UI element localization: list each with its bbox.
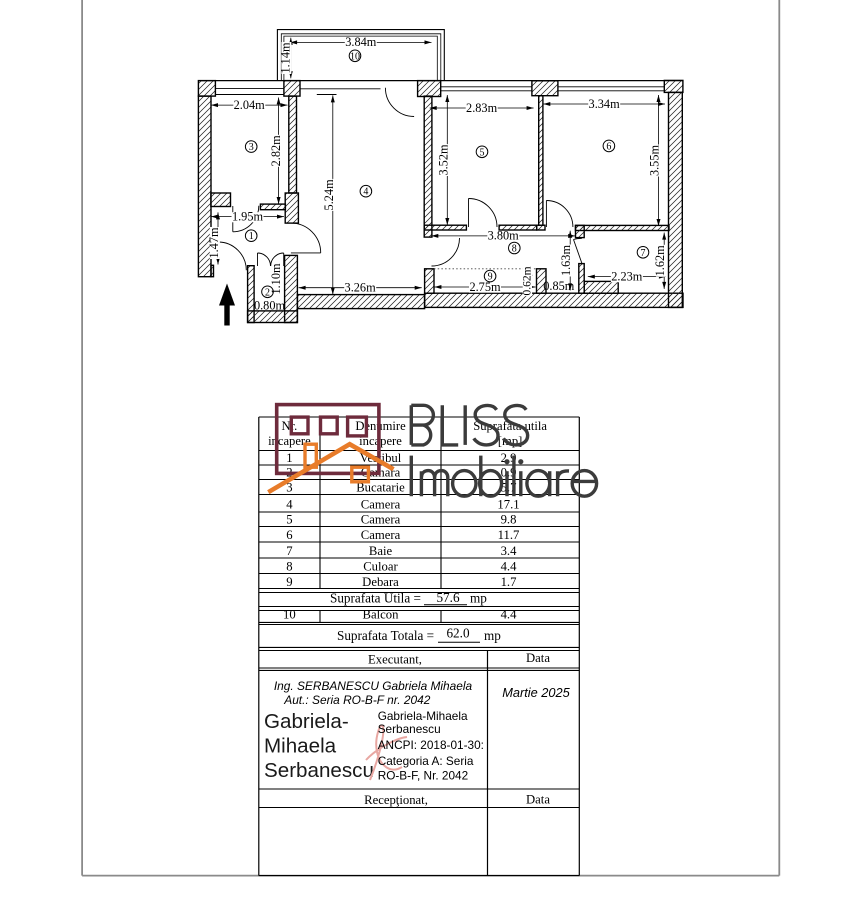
svg-text:5: 5 — [480, 147, 485, 158]
svg-text:mp: mp — [484, 628, 501, 643]
svg-text:3.34m: 3.34m — [589, 97, 621, 111]
svg-text:2: 2 — [265, 287, 270, 298]
svg-text:7: 7 — [641, 248, 646, 259]
svg-text:0.85m: 0.85m — [543, 279, 575, 293]
svg-text:Debara: Debara — [362, 575, 399, 589]
svg-text:4: 4 — [286, 498, 293, 512]
svg-text:1.7: 1.7 — [501, 575, 517, 589]
svg-text:9.8: 9.8 — [501, 513, 517, 527]
svg-text:2.23m: 2.23m — [611, 269, 643, 283]
svg-text:6: 6 — [286, 528, 292, 542]
svg-text:Baie: Baie — [369, 544, 393, 558]
svg-text:8: 8 — [512, 244, 517, 255]
svg-text:Serbanescu: Serbanescu — [264, 759, 374, 782]
svg-text:Camera: Camera — [361, 513, 401, 527]
svg-text:Camera: Camera — [361, 498, 401, 512]
svg-text:Denumire: Denumire — [355, 419, 406, 433]
svg-text:Suprafata Totala =: Suprafata Totala = — [337, 628, 434, 643]
svg-text:2.04m: 2.04m — [234, 98, 266, 112]
svg-text:Recepţionat,: Recepţionat, — [364, 793, 428, 807]
svg-text:Aut.: Seria RO-B-F nr. 2042: Aut.: Seria RO-B-F nr. 2042 — [283, 693, 430, 707]
svg-text:3.84m: 3.84m — [345, 35, 377, 49]
svg-text:4.4: 4.4 — [501, 560, 518, 574]
svg-text:7: 7 — [286, 544, 292, 558]
svg-text:Nr.: Nr. — [282, 419, 298, 433]
svg-text:6: 6 — [606, 141, 611, 152]
svg-text:Balcon: Balcon — [363, 608, 400, 622]
svg-text:1.10m: 1.10m — [269, 263, 283, 295]
svg-text:9: 9 — [286, 575, 292, 589]
svg-text:Ing. SERBANESCU Gabriela Mihae: Ing. SERBANESCU Gabriela Mihaela — [274, 679, 473, 693]
svg-text:0.62m: 0.62m — [521, 266, 533, 295]
svg-text:Mihaela: Mihaela — [264, 735, 337, 758]
svg-text:Data: Data — [526, 793, 550, 807]
svg-text:3.55m: 3.55m — [648, 145, 662, 177]
svg-text:ANCPI: 2018-01-30:: ANCPI: 2018-01-30: — [378, 738, 484, 752]
svg-text:Executant,: Executant, — [368, 653, 422, 667]
svg-text:1: 1 — [249, 231, 254, 242]
svg-text:1.63m: 1.63m — [559, 245, 573, 277]
svg-text:0.80m: 0.80m — [254, 298, 286, 312]
svg-text:2.82m: 2.82m — [269, 135, 283, 167]
svg-text:Martie 2025: Martie 2025 — [502, 685, 570, 700]
svg-text:4.4: 4.4 — [501, 608, 518, 622]
svg-text:8: 8 — [286, 560, 292, 574]
svg-text:Gabriela-: Gabriela- — [264, 710, 349, 733]
svg-text:10: 10 — [350, 51, 360, 62]
svg-text:Camera: Camera — [361, 528, 401, 542]
svg-text:62.0: 62.0 — [446, 626, 469, 641]
svg-text:1.62m: 1.62m — [653, 245, 667, 277]
svg-text:11.7: 11.7 — [498, 528, 520, 542]
svg-text:Serbanescu: Serbanescu — [378, 722, 441, 736]
svg-text:Data: Data — [526, 651, 550, 665]
svg-text:9: 9 — [488, 272, 493, 283]
svg-text:2.75m: 2.75m — [469, 280, 501, 294]
svg-text:Suprafata Utila =: Suprafata Utila = — [330, 591, 421, 606]
svg-text:Categoria A: Seria: Categoria A: Seria — [378, 754, 474, 768]
svg-text:1.14m: 1.14m — [279, 42, 293, 74]
svg-text:5: 5 — [286, 513, 292, 527]
svg-text:3: 3 — [249, 142, 254, 153]
svg-text:1.95m: 1.95m — [232, 209, 264, 223]
svg-text:3.80m: 3.80m — [488, 229, 520, 243]
svg-text:1.47m: 1.47m — [207, 227, 221, 259]
svg-text:3.26m: 3.26m — [345, 281, 377, 295]
svg-text:4: 4 — [363, 187, 368, 198]
svg-text:2.83m: 2.83m — [466, 101, 498, 115]
svg-text:5.24m: 5.24m — [322, 179, 336, 211]
svg-text:Gabriela-Mihaela: Gabriela-Mihaela — [378, 709, 468, 723]
svg-text:3.4: 3.4 — [501, 544, 518, 558]
svg-text:17.1: 17.1 — [497, 498, 519, 512]
svg-text:Culoar: Culoar — [363, 560, 398, 574]
svg-text:3.52m: 3.52m — [436, 144, 450, 176]
svg-text:1: 1 — [286, 451, 292, 465]
svg-text:10: 10 — [283, 608, 296, 622]
svg-text:mp: mp — [470, 591, 487, 606]
svg-text:57.6: 57.6 — [436, 590, 459, 605]
svg-text:RO-B-F, Nr. 2042: RO-B-F, Nr. 2042 — [378, 769, 468, 783]
